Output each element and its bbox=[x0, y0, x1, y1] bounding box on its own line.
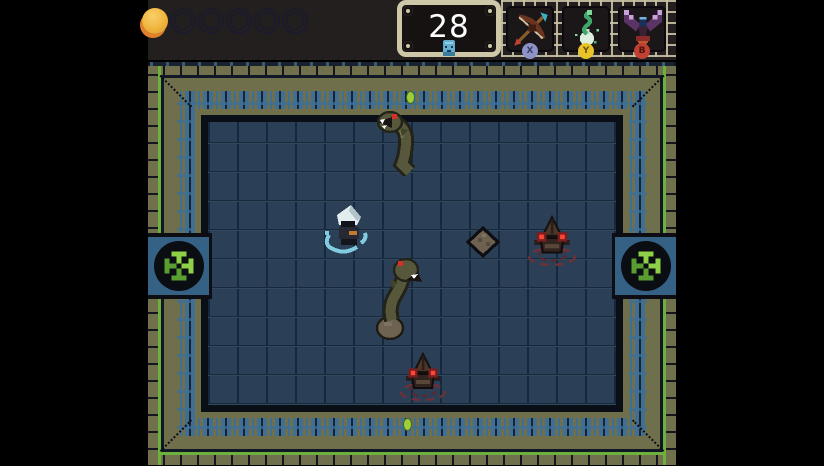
item-slot-bow[interactable]: X bbox=[506, 6, 554, 52]
sentinel-enemy-east bbox=[526, 212, 578, 268]
east-door[interactable] bbox=[612, 233, 676, 299]
button-x-badge[interactable]: X bbox=[522, 43, 538, 59]
eel-enemy-center bbox=[370, 256, 428, 340]
green-pinwheel-icon bbox=[162, 249, 196, 283]
door-seal-circle bbox=[154, 241, 204, 291]
health-orb-filled bbox=[142, 8, 168, 34]
health-orb-empty bbox=[282, 8, 308, 34]
north-wall-marker bbox=[406, 91, 415, 104]
button-b-badge[interactable]: B bbox=[634, 43, 650, 59]
item-panel: X Y bbox=[501, 0, 676, 57]
sentinel-enemy-south bbox=[398, 350, 448, 402]
hud-bar: 28 bbox=[148, 0, 676, 60]
health-orbs bbox=[142, 8, 308, 34]
health-orb-empty bbox=[254, 8, 280, 34]
enemy-counter-frame: 28 bbox=[397, 0, 501, 57]
eel-enemy-north bbox=[376, 110, 428, 176]
game-screen: 28 bbox=[0, 0, 824, 466]
rock bbox=[466, 226, 500, 258]
south-wall-marker bbox=[403, 418, 412, 431]
wall-brick-border-bottom bbox=[148, 452, 676, 465]
player-character bbox=[323, 203, 371, 255]
blue-mask-icon bbox=[441, 40, 457, 58]
health-orb-empty bbox=[198, 8, 224, 34]
west-door[interactable] bbox=[148, 233, 212, 299]
health-orb-empty bbox=[226, 8, 252, 34]
dungeon-room[interactable] bbox=[148, 62, 676, 465]
button-y-badge[interactable]: Y bbox=[578, 43, 594, 59]
game-viewport[interactable]: 28 bbox=[148, 0, 676, 466]
door-seal-circle bbox=[621, 241, 671, 291]
item-slot-bird-totem[interactable]: B bbox=[618, 6, 666, 52]
item-slot-snake-elixir[interactable]: Y bbox=[562, 6, 610, 52]
green-pinwheel-icon bbox=[629, 249, 663, 283]
health-orb-empty bbox=[170, 8, 196, 34]
